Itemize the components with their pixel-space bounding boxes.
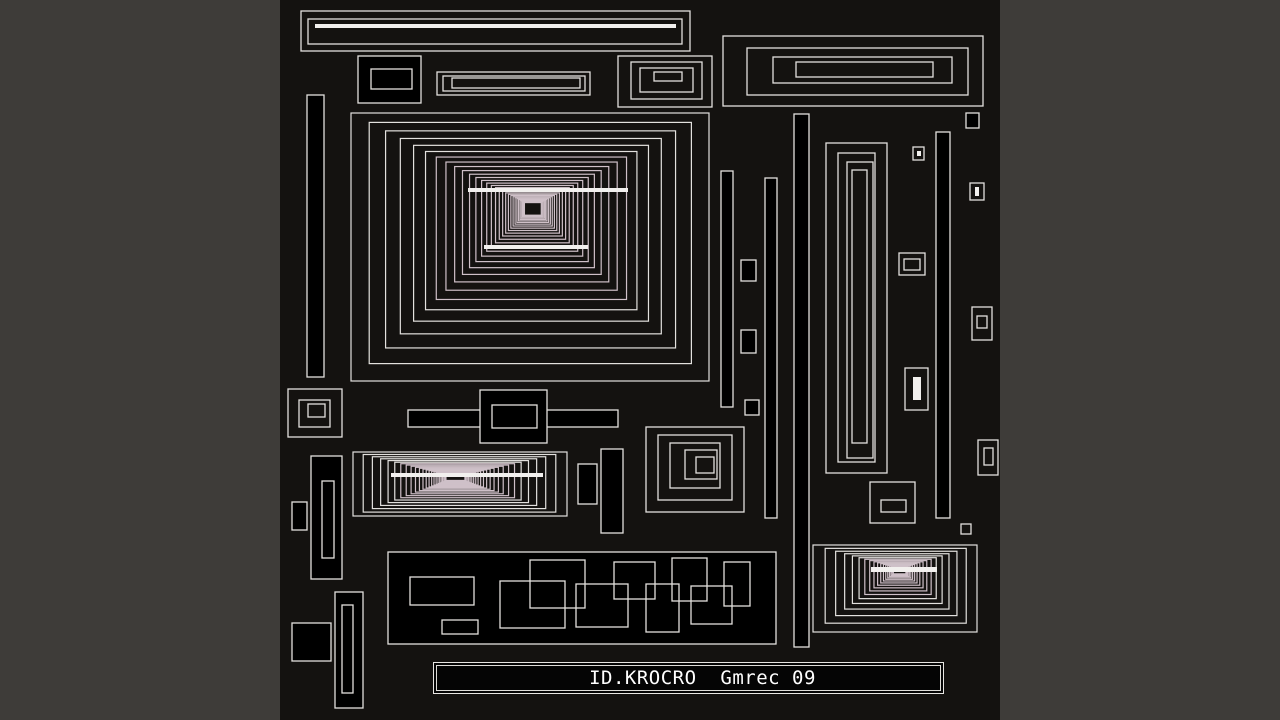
title-plate: ID.KROCRO Gmrec 09 — [433, 662, 944, 694]
title-plate-inner: ID.KROCRO Gmrec 09 — [436, 665, 941, 691]
album-art: ID.KROCRO Gmrec 09 — [0, 0, 1280, 720]
title-text: ID.KROCRO Gmrec 09 — [589, 669, 816, 688]
artwork-svg — [0, 0, 1280, 720]
